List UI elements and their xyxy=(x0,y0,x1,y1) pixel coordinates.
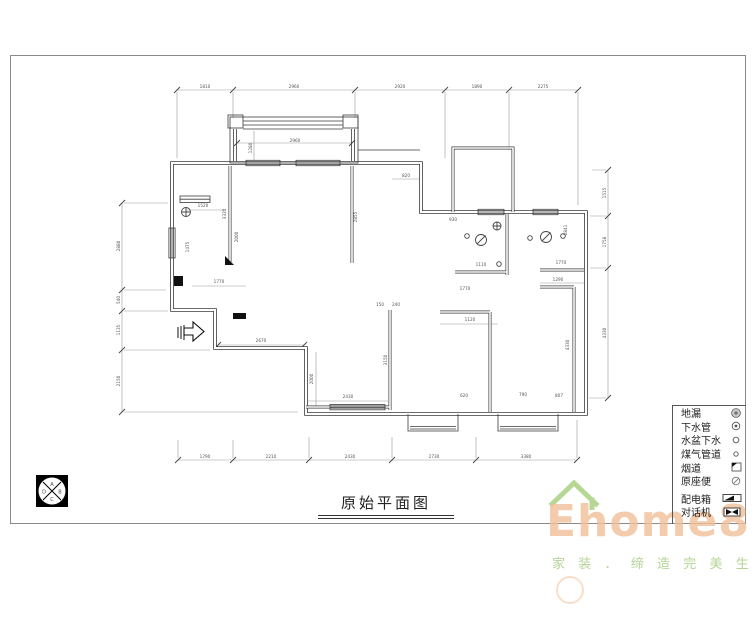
entry-arrow-icon xyxy=(178,322,204,341)
legend-item: 水盆下水 xyxy=(673,433,746,447)
dim-label: 2730 xyxy=(429,454,440,459)
intercom-icon xyxy=(722,506,742,518)
drain-symbol xyxy=(465,234,470,239)
dim-label: 790 xyxy=(519,392,527,397)
dim-label: 2880 xyxy=(116,240,121,251)
dim-label: 2670 xyxy=(256,338,267,343)
dim-label: 1520 xyxy=(198,203,209,208)
title-underline xyxy=(318,515,454,516)
dim-label: 2920 xyxy=(395,84,406,89)
door-fill-symbol xyxy=(233,313,246,319)
dim-label: 2960 xyxy=(290,138,301,143)
legend-item: 烟道 xyxy=(673,460,746,474)
dim-label: 1770 xyxy=(460,286,471,291)
dim-label: 3150 xyxy=(383,354,388,365)
dim-label: 2150 xyxy=(116,375,121,386)
dim-label: 3320 xyxy=(222,208,227,219)
dim-label: 1810 xyxy=(200,84,211,89)
dim-label: 620 xyxy=(460,393,468,398)
floor-drain-icon xyxy=(722,407,742,419)
dim-label: 1890 xyxy=(472,84,483,89)
drawing-title: 原始平面图 xyxy=(311,492,461,513)
dim-label: 1135 xyxy=(116,324,121,335)
dim-label: 1280 xyxy=(248,142,253,153)
compass-letter: D xyxy=(42,490,46,496)
dim-label: 2960 xyxy=(289,84,300,89)
dim-label: 930 xyxy=(449,217,457,222)
legend-label: 对话机 xyxy=(681,504,711,519)
dim-label: 1475 xyxy=(185,241,190,252)
legend-box: 地漏 下水管 水盆下水 煤气管道 烟道 xyxy=(672,405,746,524)
dim-label: 240 xyxy=(392,302,400,307)
original-toilet-icon xyxy=(722,475,742,487)
legend-label: 原座便 xyxy=(681,473,711,488)
watermark-tagline: 家 装 ． 缔 造 完 美 生 活 xyxy=(552,553,756,572)
compass-letter: A xyxy=(50,482,54,488)
basin-drain-icon xyxy=(722,434,742,446)
index-compass: A B C D xyxy=(36,475,68,507)
column-symbol xyxy=(174,276,183,286)
drain-symbol xyxy=(497,262,502,267)
distribution-box-icon xyxy=(722,492,742,504)
dim-label: 2430 xyxy=(345,454,356,459)
legend-item: 对话机 xyxy=(673,505,746,519)
legend-item: 煤气管道 xyxy=(673,447,746,461)
dim-label: 1120 xyxy=(465,317,476,322)
legend-item: 配电箱 xyxy=(673,492,746,506)
windows xyxy=(169,160,558,431)
dim-label: 1770 xyxy=(214,279,225,284)
dim-label: 1515 xyxy=(602,187,607,198)
dim-label: 1758 xyxy=(602,236,607,247)
dim-label: 4330 xyxy=(602,327,607,338)
wall-outline xyxy=(172,163,586,414)
legend-item: 地漏 xyxy=(673,406,746,420)
watermark-seal-icon xyxy=(556,576,584,604)
balcony-bay xyxy=(228,115,420,163)
title-block: 原始平面图 xyxy=(311,492,461,519)
title-underline xyxy=(318,518,454,519)
interior-walls xyxy=(230,148,584,412)
dim-label: 820 xyxy=(402,173,410,178)
dim-label: 540 xyxy=(116,296,121,304)
dim-label: 4330 xyxy=(565,339,570,350)
dim-label: 2210 xyxy=(266,454,277,459)
compass-letter: C xyxy=(50,497,54,503)
dim-label: 150 xyxy=(376,302,384,307)
dim-label: 2855 xyxy=(353,211,358,222)
drain-symbol xyxy=(528,236,533,241)
dim-label: 1110 xyxy=(476,262,487,267)
flue-icon xyxy=(722,461,742,473)
compass-letter: B xyxy=(58,490,62,496)
dim-label: 1770 xyxy=(556,260,567,265)
dim-label: 2430 xyxy=(343,394,354,399)
drain-pipe-icon xyxy=(722,420,742,432)
dim-label: 2000 xyxy=(234,231,239,242)
dim-label: 1290 xyxy=(553,277,564,282)
dim-label: 2275 xyxy=(538,84,549,89)
gas-pipe-icon xyxy=(722,448,742,460)
dim-label: 807 xyxy=(555,393,563,398)
legend-item: 原座便 xyxy=(673,474,746,488)
dim-label: 2000 xyxy=(309,373,314,384)
dim-label: 3380 xyxy=(521,454,532,459)
legend-item: 下水管 xyxy=(673,420,746,434)
dim-label: 1790 xyxy=(200,454,211,459)
drawing-sheet: 1810 2960 2920 1890 2275 1790 2210 2430 … xyxy=(0,0,756,630)
